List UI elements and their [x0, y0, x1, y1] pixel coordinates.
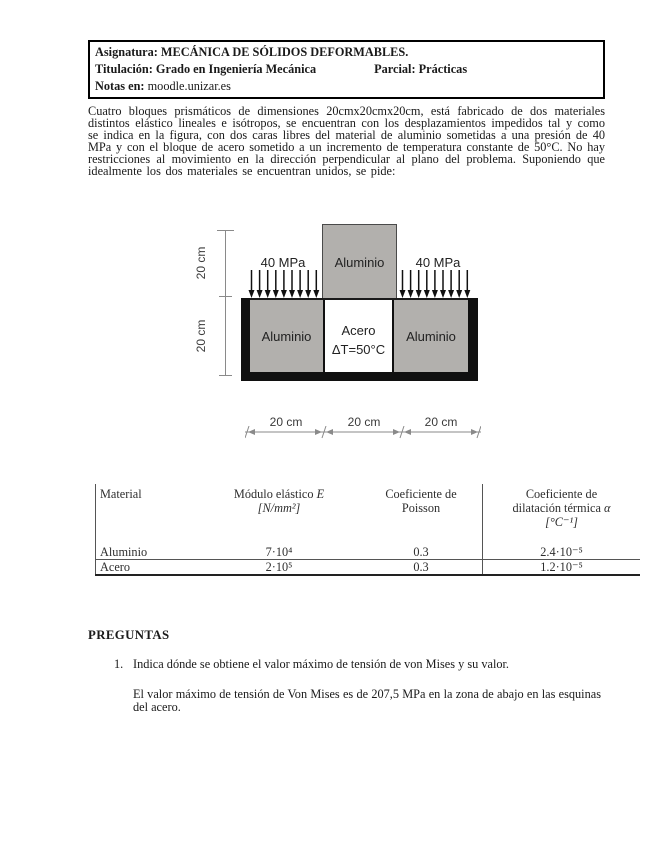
asignatura-value: MECÁNICA DE SÓLIDOS DEFORMABLES. — [158, 45, 408, 59]
col-header-poisson: Coeficiente de Poisson — [360, 484, 483, 545]
block-aluminio-top: Aluminio — [322, 224, 397, 300]
titulacion-value: Grado en Ingeniería Mecánica — [153, 62, 316, 76]
cell-material: Aluminio — [96, 545, 199, 560]
asignatura-label: Asignatura: — [95, 45, 158, 59]
header-line-asignatura: Asignatura: MECÁNICA DE SÓLIDOS DEFORMAB… — [95, 44, 598, 61]
question-1: 1. Indica dónde se obtiene el valor máxi… — [114, 658, 594, 671]
cell-dilatacion: 2.4·10⁻⁵ — [483, 545, 641, 560]
block-acero-label: Acero — [342, 321, 376, 340]
cell-poisson: 0.3 — [360, 545, 483, 560]
vertical-dimension-line — [225, 230, 226, 376]
cell-poisson: 0.3 — [360, 560, 483, 576]
col-header-material: Material — [96, 484, 199, 545]
pressure-arrows-right-icon — [398, 270, 472, 298]
parcial-value: Prácticas — [416, 62, 468, 76]
block-acero-temperature: ΔT=50°C — [332, 340, 385, 359]
pressure-label-right: 40 MPa — [398, 255, 478, 270]
cell-dilatacion: 1.2·10⁻⁵ — [483, 560, 641, 576]
dimension-tick — [219, 375, 232, 376]
table-row-acero: Acero 2·10⁵ 0.3 1.2·10⁻⁵ — [96, 560, 641, 576]
block-aluminio-left: Aluminio — [250, 300, 323, 372]
pressure-label-left: 40 MPa — [243, 255, 323, 270]
col-header-dilatacion: Coeficiente de dilatación térmica α[°C⁻¹… — [483, 484, 641, 545]
question-1-answer: El valor máximo de tensión de Von Mises … — [133, 688, 601, 713]
rigid-support: Aluminio Acero ΔT=50°C Aluminio — [241, 298, 478, 381]
question-1-text: Indica dónde se obtiene el valor máximo … — [133, 658, 509, 671]
dimension-tick — [217, 230, 234, 231]
course-header-box: Asignatura: MECÁNICA DE SÓLIDOS DEFORMAB… — [88, 40, 605, 99]
cell-material: Acero — [96, 560, 199, 576]
support-cavity: Aluminio Acero ΔT=50°C Aluminio — [250, 298, 468, 372]
block-acero: Acero ΔT=50°C — [323, 300, 394, 372]
dimension-tick — [219, 296, 232, 297]
titulacion-label: Titulación: — [95, 62, 153, 76]
dim-label-vertical-bottom: 20 cm — [193, 306, 209, 366]
cell-modulo: 7·10⁴ — [198, 545, 360, 560]
pressure-arrows-left-icon — [247, 270, 321, 298]
block-aluminio-top-label: Aluminio — [335, 255, 385, 270]
question-1-number: 1. — [114, 658, 133, 671]
blocks-figure: 20 cm 20 cm Aluminio 40 MPa 40 MPa Alumi… — [0, 222, 655, 460]
block-aluminio-right: Aluminio — [394, 300, 468, 372]
block-aluminio-right-label: Aluminio — [406, 329, 456, 344]
block-aluminio-left-label: Aluminio — [262, 329, 312, 344]
parcial-label: Parcial: — [374, 62, 415, 76]
notas-label: Notas en: — [95, 79, 145, 93]
dim-label-vertical-top: 20 cm — [193, 233, 209, 293]
questions-section-title: PREGUNTAS — [88, 628, 170, 643]
problem-statement: Cuatro bloques prismáticos de dimensione… — [88, 106, 605, 177]
header-line-titulacion: Titulación: Grado en Ingeniería Mecánica… — [95, 61, 598, 78]
table-header-row: Material Módulo elástico E[N/mm²] Coefic… — [96, 484, 641, 545]
material-properties-table: Material Módulo elástico E[N/mm²] Coefic… — [95, 484, 610, 576]
cell-modulo: 2·10⁵ — [198, 560, 360, 576]
document-page: Asignatura: MECÁNICA DE SÓLIDOS DEFORMAB… — [0, 0, 655, 848]
table-row-aluminio: Aluminio 7·10⁴ 0.3 2.4·10⁻⁵ — [96, 545, 641, 560]
horizontal-dimension-line — [245, 426, 481, 439]
col-header-modulo: Módulo elástico E[N/mm²] — [198, 484, 360, 545]
notas-value: moodle.unizar.es — [145, 79, 231, 93]
header-line-notas: Notas en: moodle.unizar.es — [95, 78, 598, 95]
